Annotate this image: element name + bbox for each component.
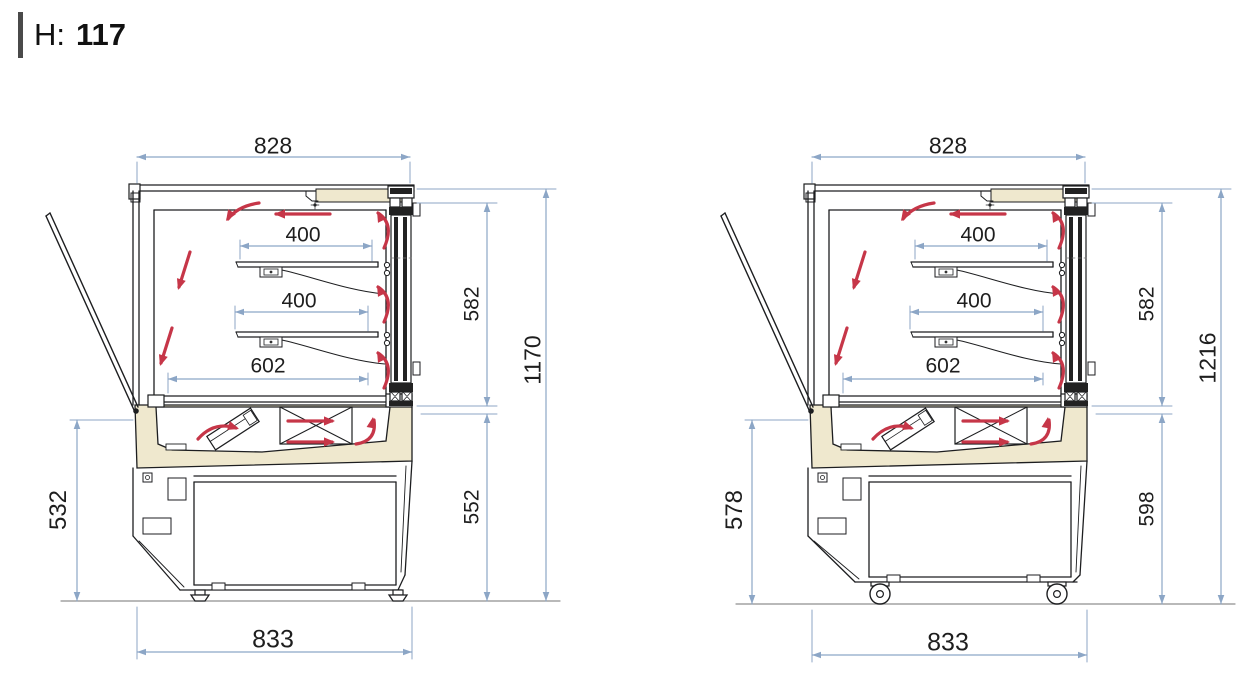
dim-label-total-height-right: 1216 xyxy=(1197,332,1220,383)
dim-label-left-height-left: 532 xyxy=(47,490,71,530)
dim-label-lower-shelf-right: 400 xyxy=(956,291,991,312)
glass-front xyxy=(1063,186,1095,406)
dim-label-top-width-right: 828 xyxy=(929,135,967,158)
drawing-sheet: H: 117 828 400 400 602 582 552 1170 532 … xyxy=(0,0,1250,684)
dim-label-lower-shelf-left: 400 xyxy=(281,291,316,312)
adjustable-feet xyxy=(191,590,407,601)
dim-label-upper-shelf-right: 400 xyxy=(960,225,995,246)
dim-label-overall-width-right: 833 xyxy=(927,631,969,656)
caster-wheels xyxy=(870,582,1067,604)
dim-label-base-depth-right: 602 xyxy=(925,356,960,377)
dim-label-total-height-left: 1170 xyxy=(522,335,545,384)
height-class-value: 117 xyxy=(76,17,126,53)
lower-cabinet xyxy=(808,461,1087,582)
dim-label-lower-height-left: 552 xyxy=(462,489,483,524)
top-frame xyxy=(129,184,414,209)
dim-label-display-height-left: 582 xyxy=(462,286,483,321)
dim-label-left-height-right: 578 xyxy=(723,490,747,530)
dim-label-display-height-right: 582 xyxy=(1137,286,1158,321)
lower-cabinet xyxy=(133,461,412,590)
title-accent-bar xyxy=(18,12,23,58)
dim-label-top-width-left: 828 xyxy=(254,135,292,158)
technical-drawing-canvas xyxy=(0,0,1250,684)
title-block: H: 117 xyxy=(18,12,126,58)
top-frame xyxy=(804,184,1089,209)
rear-door-open xyxy=(721,191,815,414)
dim-label-overall-width-left: 833 xyxy=(252,628,294,653)
dim-label-upper-shelf-left: 400 xyxy=(285,225,320,246)
rear-door-open xyxy=(46,191,140,414)
height-class-label: H: xyxy=(34,17,65,53)
dim-label-lower-height-right: 598 xyxy=(1137,491,1158,526)
dim-label-base-depth-left: 602 xyxy=(250,356,285,377)
glass-front xyxy=(388,186,420,406)
